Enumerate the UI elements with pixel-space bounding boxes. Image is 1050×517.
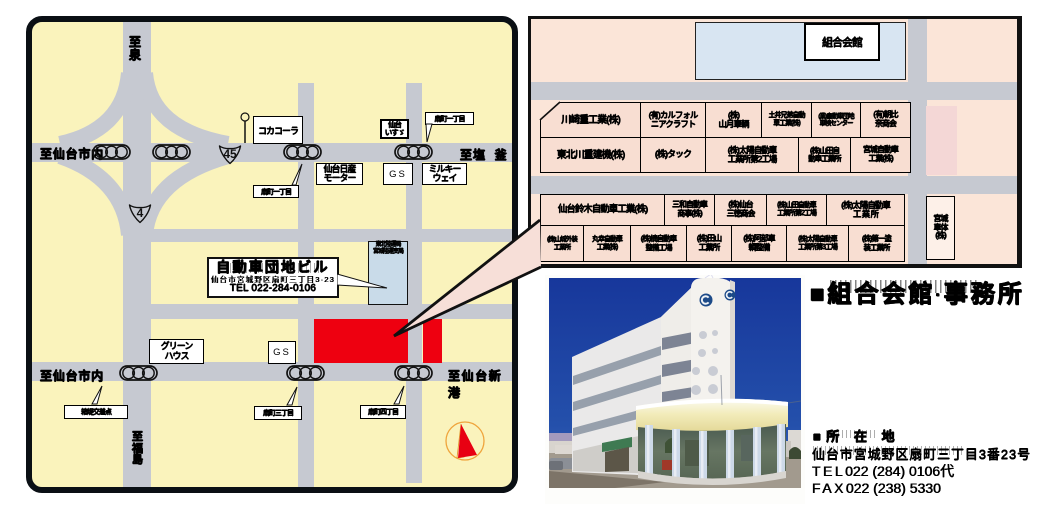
svg-text:4: 4 (137, 206, 144, 220)
svg-text:45: 45 (223, 147, 237, 161)
